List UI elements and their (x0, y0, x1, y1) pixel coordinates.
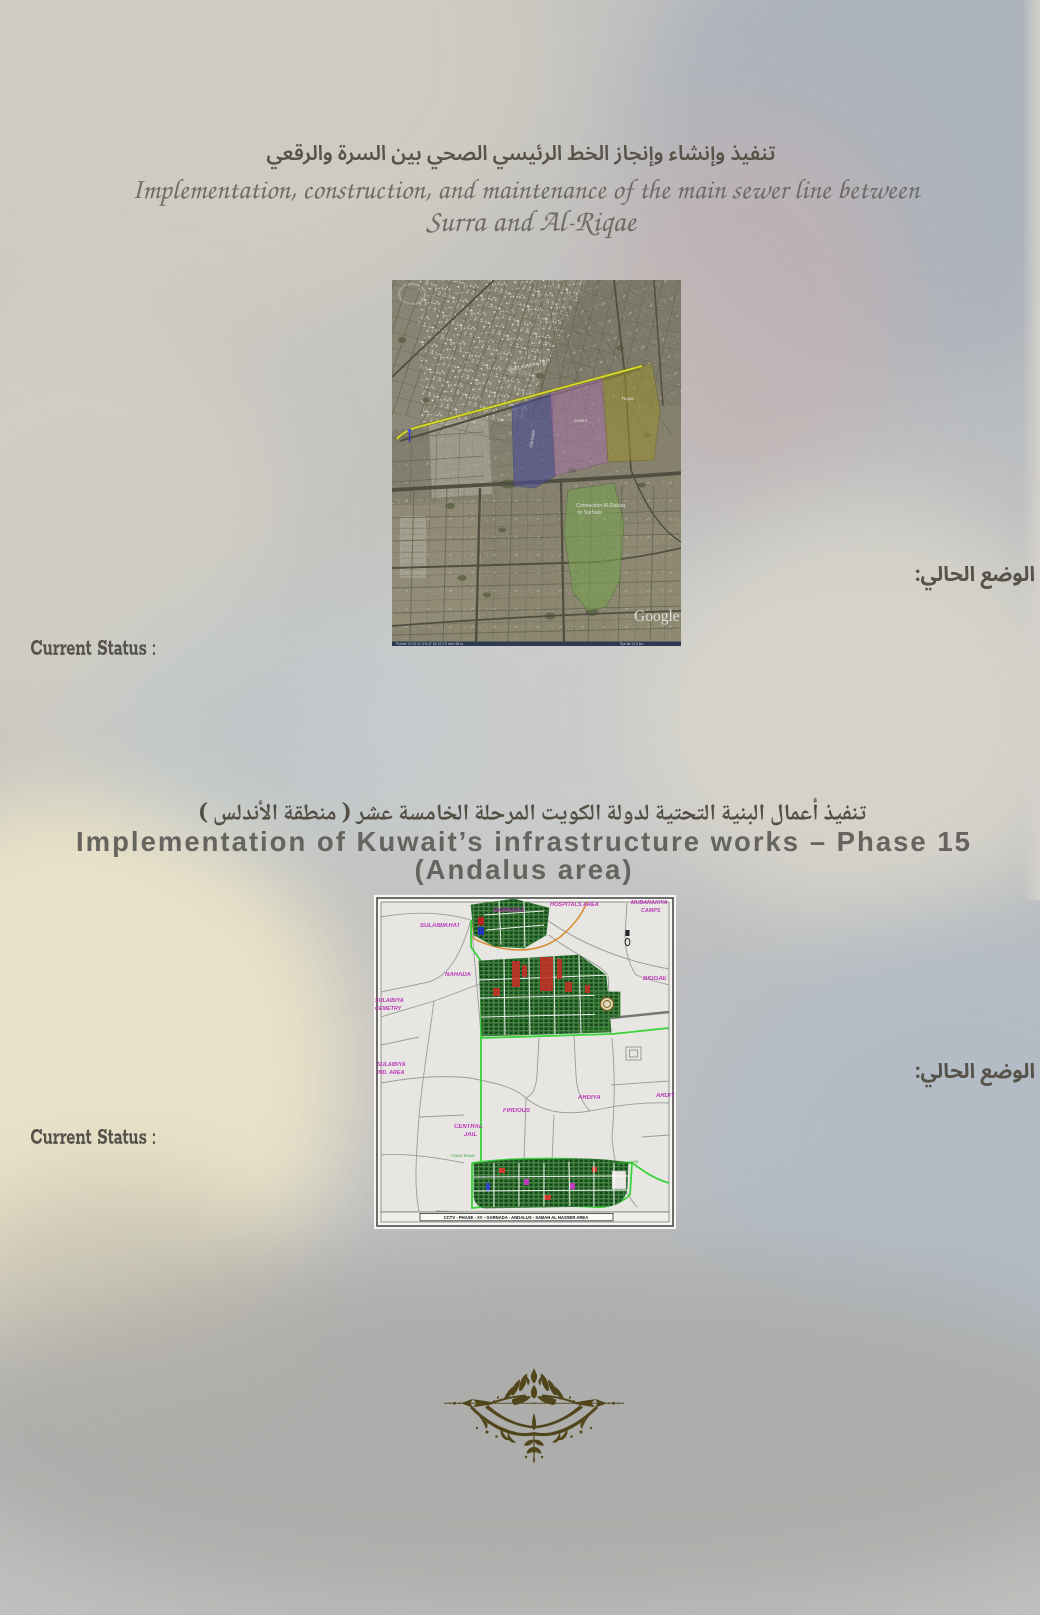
svg-text:MUBARAKIYA: MUBARAKIYA (631, 900, 668, 906)
svg-text:BIGGAE: BIGGAE (643, 976, 668, 982)
svg-text:NAHADA: NAHADA (445, 972, 471, 978)
svg-text:CAMPS: CAMPS (641, 908, 661, 914)
svg-text:Pointer 29 15 47.3 N 47 58 12.: Pointer 29 15 47.3 N 47 58 12.2 E elev 3… (396, 642, 463, 646)
svg-text:FIRDOUS: FIRDOUS (503, 1108, 530, 1114)
svg-text:SULAIBIYA: SULAIBIYA (375, 998, 404, 1004)
svg-text:(Andalus area): (Andalus area) (414, 854, 633, 885)
svg-text:ARDIYA: ARDIYA (577, 1095, 601, 1101)
svg-text:CENTRAL: CENTRAL (454, 1124, 483, 1130)
svg-text:ARDIY: ARDIY (655, 1093, 676, 1099)
svg-text:SULAIBIKHAT: SULAIBIKHAT (420, 923, 462, 929)
svg-text:HOSPITALS AREA: HOSPITALS AREA (550, 902, 599, 908)
svg-text:Eye alt 12.5 km: Eye alt 12.5 km (620, 642, 644, 646)
svg-text:GARNADA: GARNADA (493, 907, 525, 914)
svg-text:JAIL: JAIL (464, 1132, 477, 1138)
svg-text:CEMETRY: CEMETRY (375, 1006, 402, 1012)
svg-text:IND. AREA: IND. AREA (377, 1070, 404, 1076)
svg-text:SULAIBIYA: SULAIBIYA (377, 1062, 406, 1068)
svg-text:CCTV - PHASE - XV - GARNADA -: CCTV - PHASE - XV - GARNADA - ANDALUS - … (444, 1215, 588, 1220)
svg-text:7 RING ROAD: 7 RING ROAD (450, 1154, 475, 1158)
svg-text:Implementation of Kuwait’s inf: Implementation of Kuwait’s infrastructur… (76, 826, 972, 857)
